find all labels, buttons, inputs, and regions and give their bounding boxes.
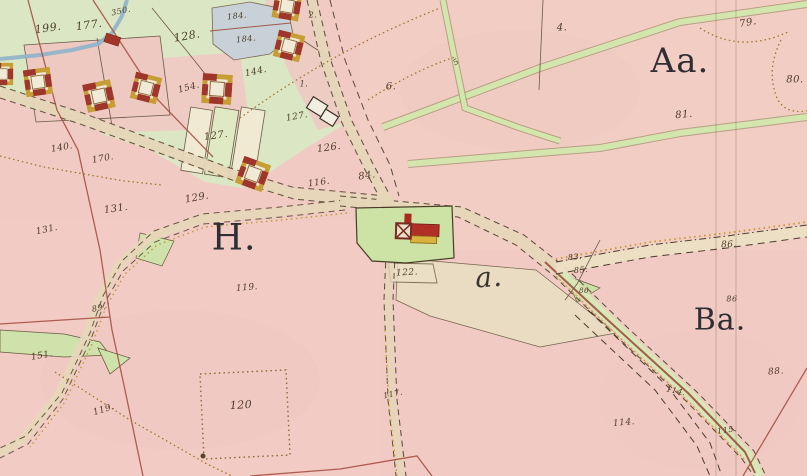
map-sheet: Aa.H.Ba.a.199.177.128.184.184.144.154.12… [0,0,807,476]
map-linework [0,0,807,476]
